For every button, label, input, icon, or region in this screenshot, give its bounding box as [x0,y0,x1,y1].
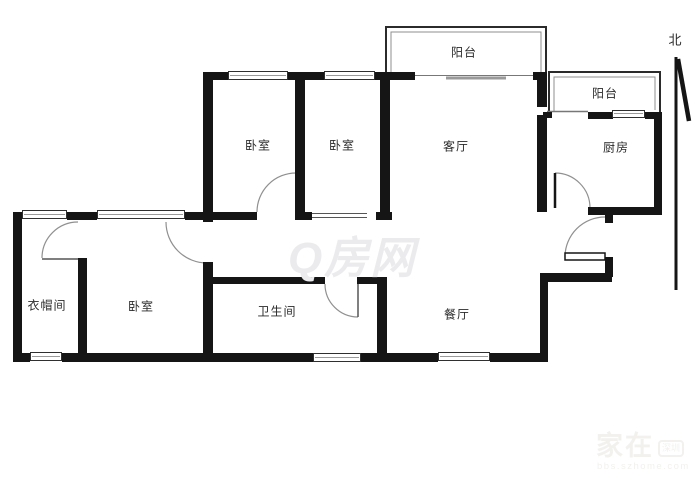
window-symbol [438,352,490,361]
north-label: 北 [668,30,681,49]
wall-segment [543,112,552,118]
watermark-corner: 家在 深圳 [596,433,684,460]
window-symbol [324,71,375,80]
room-label-bathroom: 卫生间 [257,303,296,320]
window-symbol [612,110,645,118]
wall-segment [654,112,662,215]
wall-segment [588,207,662,215]
sliding-door-symbol [415,76,533,79]
wall-segment [540,273,548,362]
wall-segment [78,258,87,362]
wall-segment [185,212,257,220]
wall-segment [67,212,97,220]
wall-segment [380,72,390,220]
room-label-living-room: 客厅 [443,138,469,155]
window-symbol [30,352,62,361]
window-symbol [228,71,288,80]
wall-segment [533,72,547,80]
watermark-corner-badge: 深圳 [658,440,684,457]
wall-segment [62,353,313,362]
wall-segment [288,72,324,80]
door-arc-bathroom [325,284,358,317]
room-label-bedroom-a: 卧室 [245,137,271,154]
bedroom-b-partition-line [310,214,367,218]
room-label-balcony-top: 阳台 [451,44,477,61]
wall-segment [588,112,613,119]
door-arc-entry [565,217,605,260]
room-label-bedroom-c: 卧室 [128,298,154,315]
window-symbol [313,353,361,362]
room-label-cloakroom: 衣帽间 [27,297,66,314]
room-label-kitchen: 厨房 [603,139,629,156]
wall-segment [13,353,30,362]
wall-segment [605,215,613,223]
wall-segment [13,212,22,362]
watermark-corner-text: 家在 [596,433,654,460]
door-arc-bedroom-a [257,173,296,212]
watermark-center: Q房网 [288,222,416,286]
door-arc-bedroom-c [166,222,207,263]
wall-segment [296,212,312,220]
wall-segment [295,72,305,220]
floor-plan: 阳台 阳台 卧室 卧室 客厅 厨房 衣帽间 卧室 卫生间 餐厅 北 Q房网 家在… [0,0,700,481]
window-symbol [97,210,185,219]
room-label-dining-room: 餐厅 [444,306,470,323]
room-label-balcony-right: 阳台 [592,85,618,102]
room-label-bedroom-b: 卧室 [329,137,355,154]
wall-segment [377,277,387,362]
wall-segment [375,72,415,80]
wall-segment [490,353,548,362]
wall-segment [537,115,547,212]
north-arrow-icon [676,57,689,290]
door-arc-kitchen [555,173,590,208]
watermark-corner-url: bbs.szhome.com [597,461,690,472]
wall-segment [361,353,438,362]
wall-segment [540,273,612,282]
door-arc-cloakroom [42,222,78,259]
wall-segment [203,72,213,222]
wall-segment [203,72,228,80]
window-symbol [22,210,67,219]
wall-segment [645,112,662,119]
wall-segment [376,212,392,220]
